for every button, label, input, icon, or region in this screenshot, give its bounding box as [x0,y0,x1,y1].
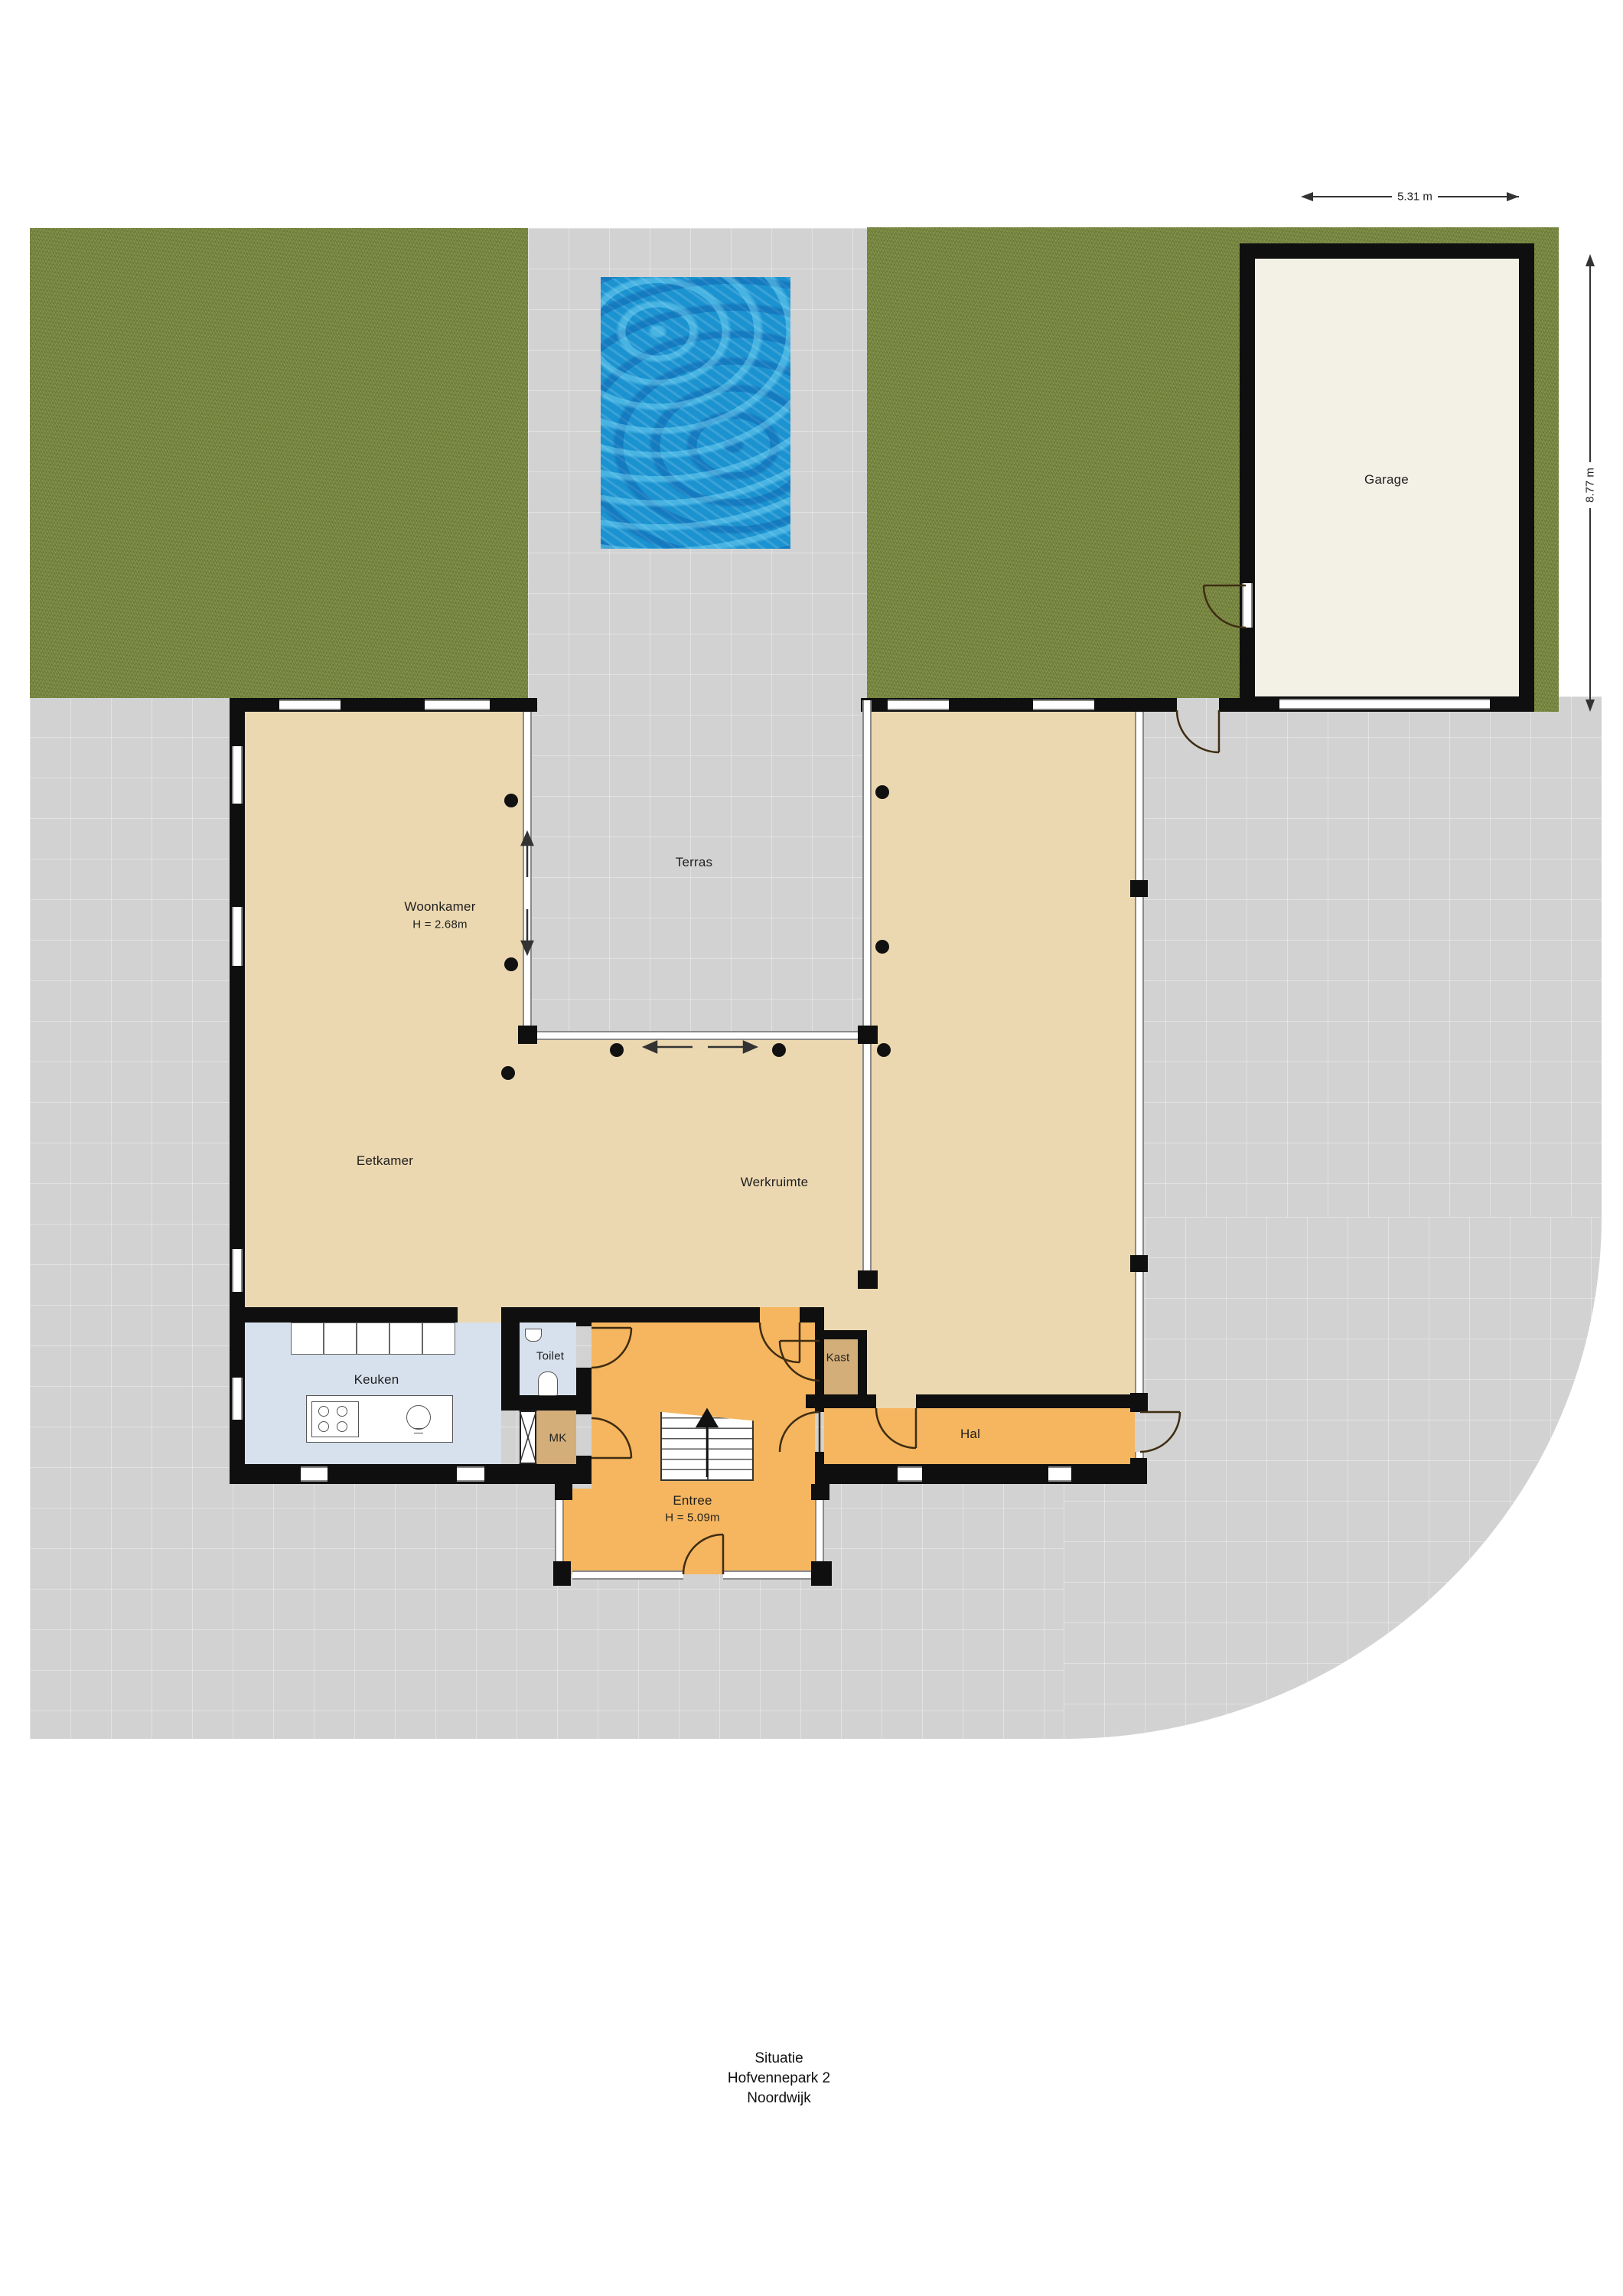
room-height-entree: H = 5.09m [665,1512,719,1525]
slide-arrow-right-icon [708,1042,756,1052]
shaft-x-icon [520,1411,536,1464]
door-arc-garage-side [1204,585,1246,628]
slide-arrow-up-icon [522,833,533,877]
door-arc-hal-exterior [1140,1412,1180,1452]
slide-arrow-left-icon [644,1042,693,1052]
floorplan-canvas: 5.31 m 8.77 m Woonkamer H = 2.68m Terras… [0,0,1623,2296]
door-arc-toilet [592,1328,631,1368]
slide-arrow-down-icon [522,909,533,954]
room-label-keuken: Keuken [354,1372,399,1388]
room-label-woonkamer: Woonkamer [404,899,475,915]
room-label-terras: Terras [676,855,712,870]
door-arc-ne-corner [1177,710,1219,752]
title-line-city: Noordwijk [728,2089,830,2108]
door-arc-mk [592,1418,631,1458]
title-line-situatie: Situatie [728,2049,830,2069]
dimension-label-garage-width: 5.31 m [1392,191,1438,204]
title-block: Situatie Hofvennepark 2 Noordwijk [728,2049,830,2108]
door-arc-entree-hal [780,1412,820,1452]
room-label-werkruimte: Werkruimte [741,1175,809,1190]
room-label-garage: Garage [1364,472,1409,488]
room-label-toilet: Toilet [536,1350,564,1363]
room-height-woonkamer: H = 2.68m [412,918,467,931]
dimension-arrowheads [1301,192,1595,712]
title-line-address: Hofvennepark 2 [728,2069,830,2089]
dimension-label-garage-depth: 8.77 m [1584,462,1597,508]
door-arc-front-entrance [683,1534,723,1574]
room-label-hal: Hal [960,1427,980,1442]
room-label-entree: Entree [673,1493,712,1508]
symbols-overlay [0,0,1623,2296]
room-label-eetkamer: Eetkamer [357,1153,413,1169]
room-label-kast: Kast [826,1352,850,1365]
door-arc-hal-room [876,1408,916,1448]
stairs-up-arrow-icon [697,1410,717,1477]
room-label-mk: MK [549,1432,567,1445]
